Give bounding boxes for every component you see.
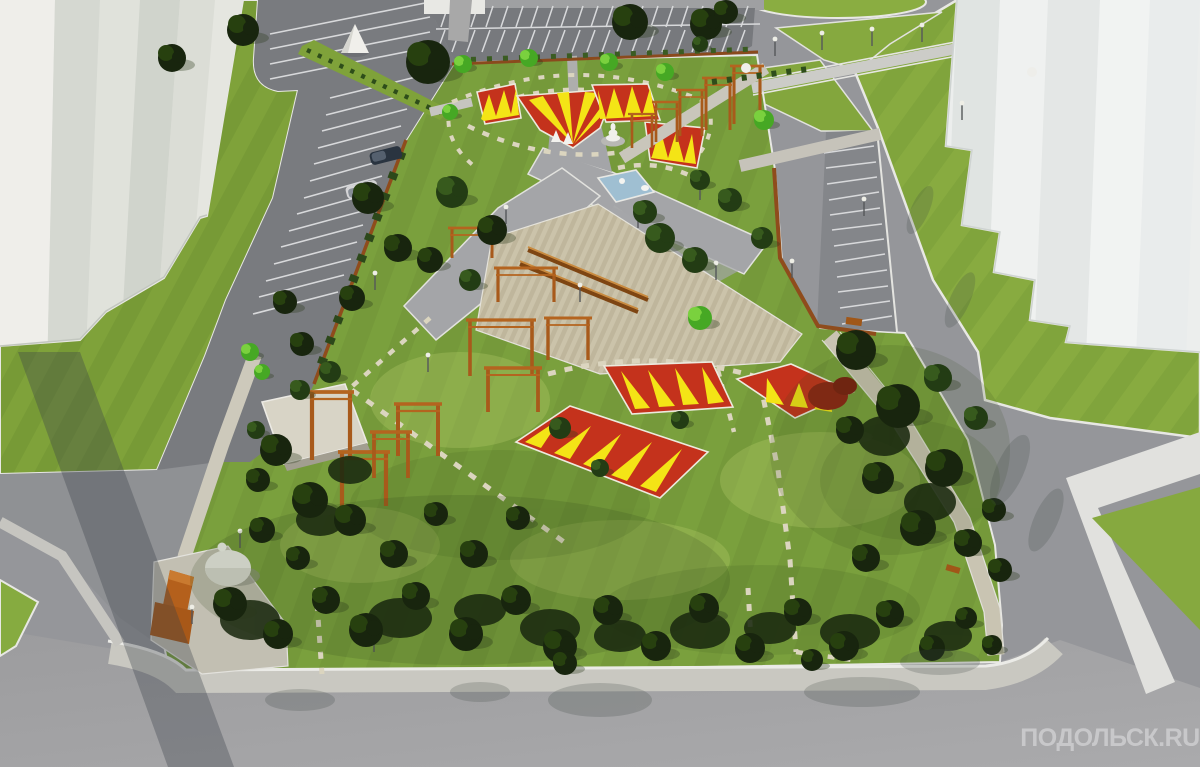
svg-text:ПОДОЛЬСК.RU: ПОДОЛЬСК.RU xyxy=(1020,724,1199,752)
